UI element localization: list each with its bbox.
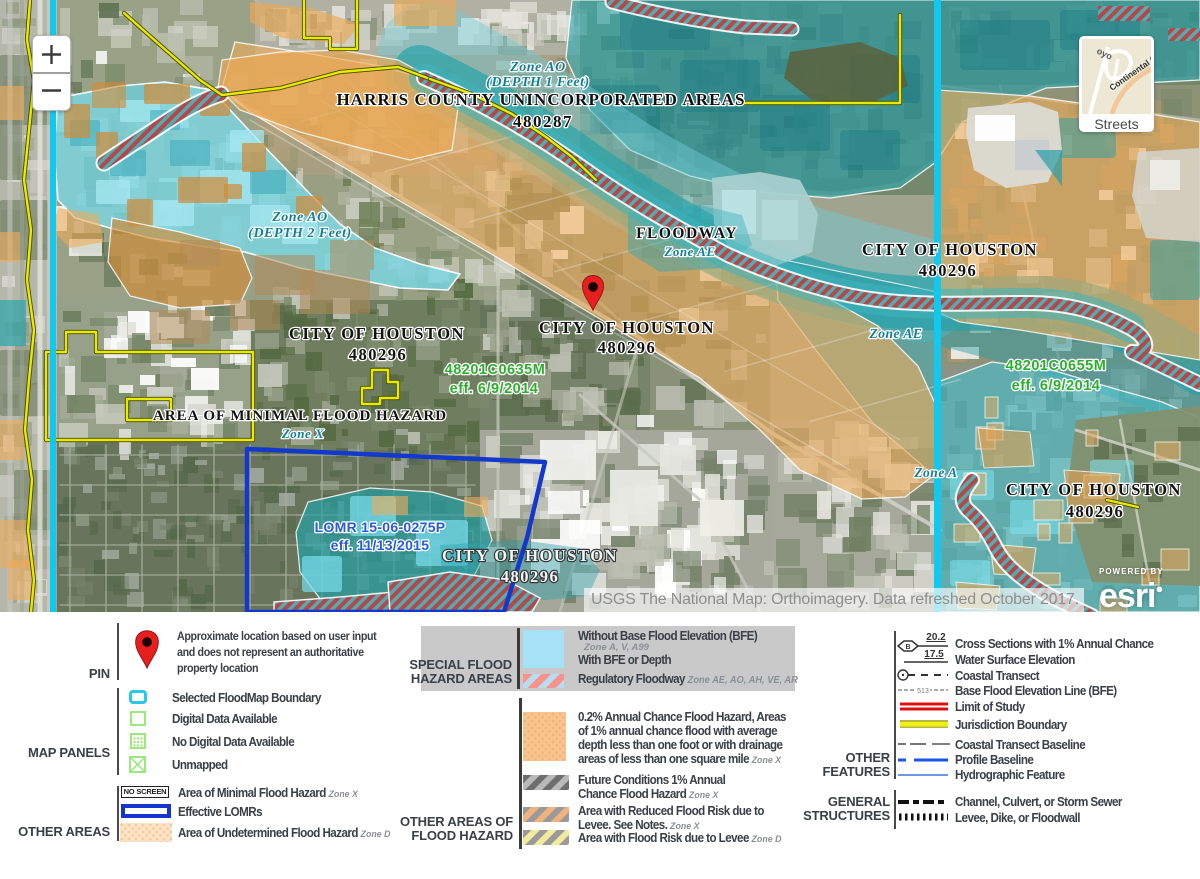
svg-text:eff. 11/13/2015: eff. 11/13/2015 xyxy=(331,537,430,553)
svg-text:480296: 480296 xyxy=(349,345,408,364)
svg-text:CITY OF HOUSTON: CITY OF HOUSTON xyxy=(539,318,715,337)
svg-text:480287: 480287 xyxy=(513,112,573,131)
svg-text:CITY OF HOUSTON: CITY OF HOUSTON xyxy=(289,324,465,343)
svg-text:480296: 480296 xyxy=(919,261,978,280)
svg-text:480296: 480296 xyxy=(598,338,657,357)
svg-text:CITY OF HOUSTON: CITY OF HOUSTON xyxy=(862,240,1038,259)
svg-text:Zone AO: Zone AO xyxy=(271,210,327,225)
svg-text:AREA OF MINIMAL FLOOD HAZARD: AREA OF MINIMAL FLOOD HAZARD xyxy=(153,408,447,424)
svg-text:480296: 480296 xyxy=(1066,502,1125,521)
svg-text:(DEPTH 1 Feet): (DEPTH 1 Feet) xyxy=(486,75,589,90)
svg-text:17.5: 17.5 xyxy=(924,649,944,660)
svg-text:Zone AE: Zone AE xyxy=(663,244,715,259)
svg-text:CITY OF HOUSTON: CITY OF HOUSTON xyxy=(1006,480,1182,499)
svg-text:513: 513 xyxy=(917,688,929,695)
svg-text:Zone A: Zone A xyxy=(913,465,957,480)
svg-text:480296: 480296 xyxy=(501,567,560,586)
svg-text:eff. 6/9/2014: eff. 6/9/2014 xyxy=(1012,378,1101,394)
svg-text:CITY OF HOUSTON: CITY OF HOUSTON xyxy=(442,546,618,565)
svg-text:20.2: 20.2 xyxy=(926,632,946,643)
svg-text:48201C0635M: 48201C0635M xyxy=(445,362,546,378)
svg-text:(DEPTH 2 Feet): (DEPTH 2 Feet) xyxy=(248,226,351,241)
svg-text:HARRIS COUNTY UNINCORPORATED A: HARRIS COUNTY UNINCORPORATED AREAS xyxy=(336,90,745,109)
svg-text:B: B xyxy=(905,644,910,651)
svg-text:eff. 6/9/2014: eff. 6/9/2014 xyxy=(450,381,539,397)
svg-text:Zone AO: Zone AO xyxy=(509,60,565,75)
svg-text:FLOODWAY: FLOODWAY xyxy=(636,225,738,242)
svg-text:Zone X: Zone X xyxy=(281,426,324,441)
svg-text:Zone AE: Zone AE xyxy=(869,326,923,341)
svg-text:LOMR 15-06-0275P: LOMR 15-06-0275P xyxy=(315,519,446,535)
svg-text:48201C0655M: 48201C0655M xyxy=(1006,358,1107,374)
